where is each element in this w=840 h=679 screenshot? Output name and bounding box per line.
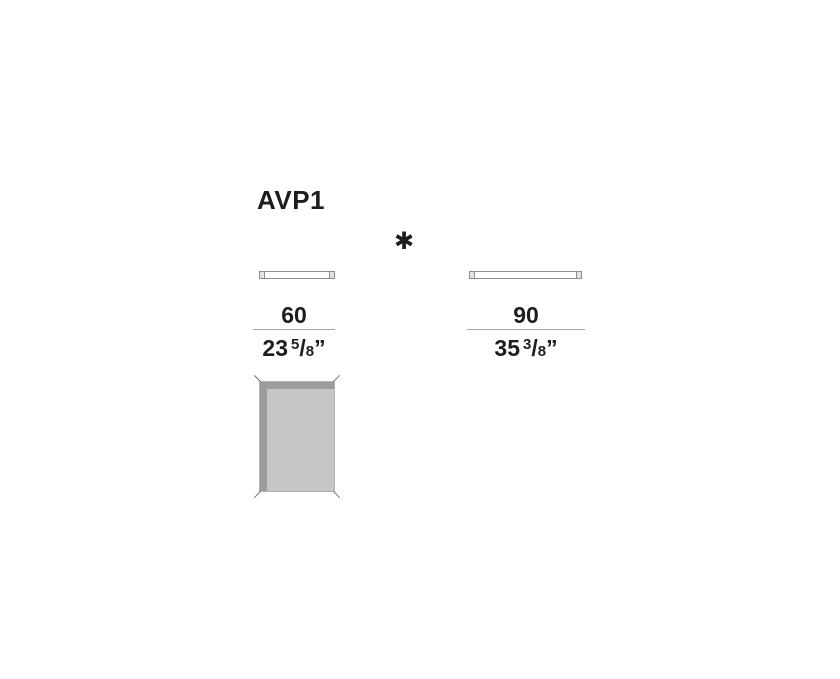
bar-end-cap-left xyxy=(260,272,265,278)
dimension-90: 90 353/8” xyxy=(467,304,585,363)
shelf-60-front-view xyxy=(259,271,335,279)
inch-unit-mark: ” xyxy=(546,335,558,361)
dimension-90-cm-value: 90 xyxy=(467,304,585,329)
product-code: AVP1 xyxy=(257,185,325,216)
inch-unit-mark: ” xyxy=(314,335,326,361)
footnote-asterisk-icon: ✱ xyxy=(390,229,418,253)
corner-tick-top-left xyxy=(254,375,261,382)
fraction-denominator: 8 xyxy=(306,343,314,360)
corner-tick-bottom-left xyxy=(254,491,261,498)
dimension-60-cm-value: 60 xyxy=(253,304,335,329)
bar-end-cap-right xyxy=(576,272,581,278)
spec-sheet: AVP1 ✱ 60 235/8” 90 353/8” xyxy=(0,0,840,679)
inch-whole: 23 xyxy=(262,335,288,361)
dimension-60-inch-value: 235/8” xyxy=(253,330,335,363)
bar-end-cap-right xyxy=(329,272,334,278)
fraction-denominator: 8 xyxy=(538,343,546,360)
shelf-60-top-view xyxy=(259,381,335,492)
inch-whole: 35 xyxy=(494,335,520,361)
corner-tick-top-right xyxy=(333,375,340,382)
shelf-90-front-view xyxy=(469,271,582,279)
dimension-90-inch-value: 353/8” xyxy=(467,330,585,363)
corner-tick-bottom-right xyxy=(333,491,340,498)
bar-end-cap-left xyxy=(470,272,475,278)
dimension-60: 60 235/8” xyxy=(253,304,335,363)
